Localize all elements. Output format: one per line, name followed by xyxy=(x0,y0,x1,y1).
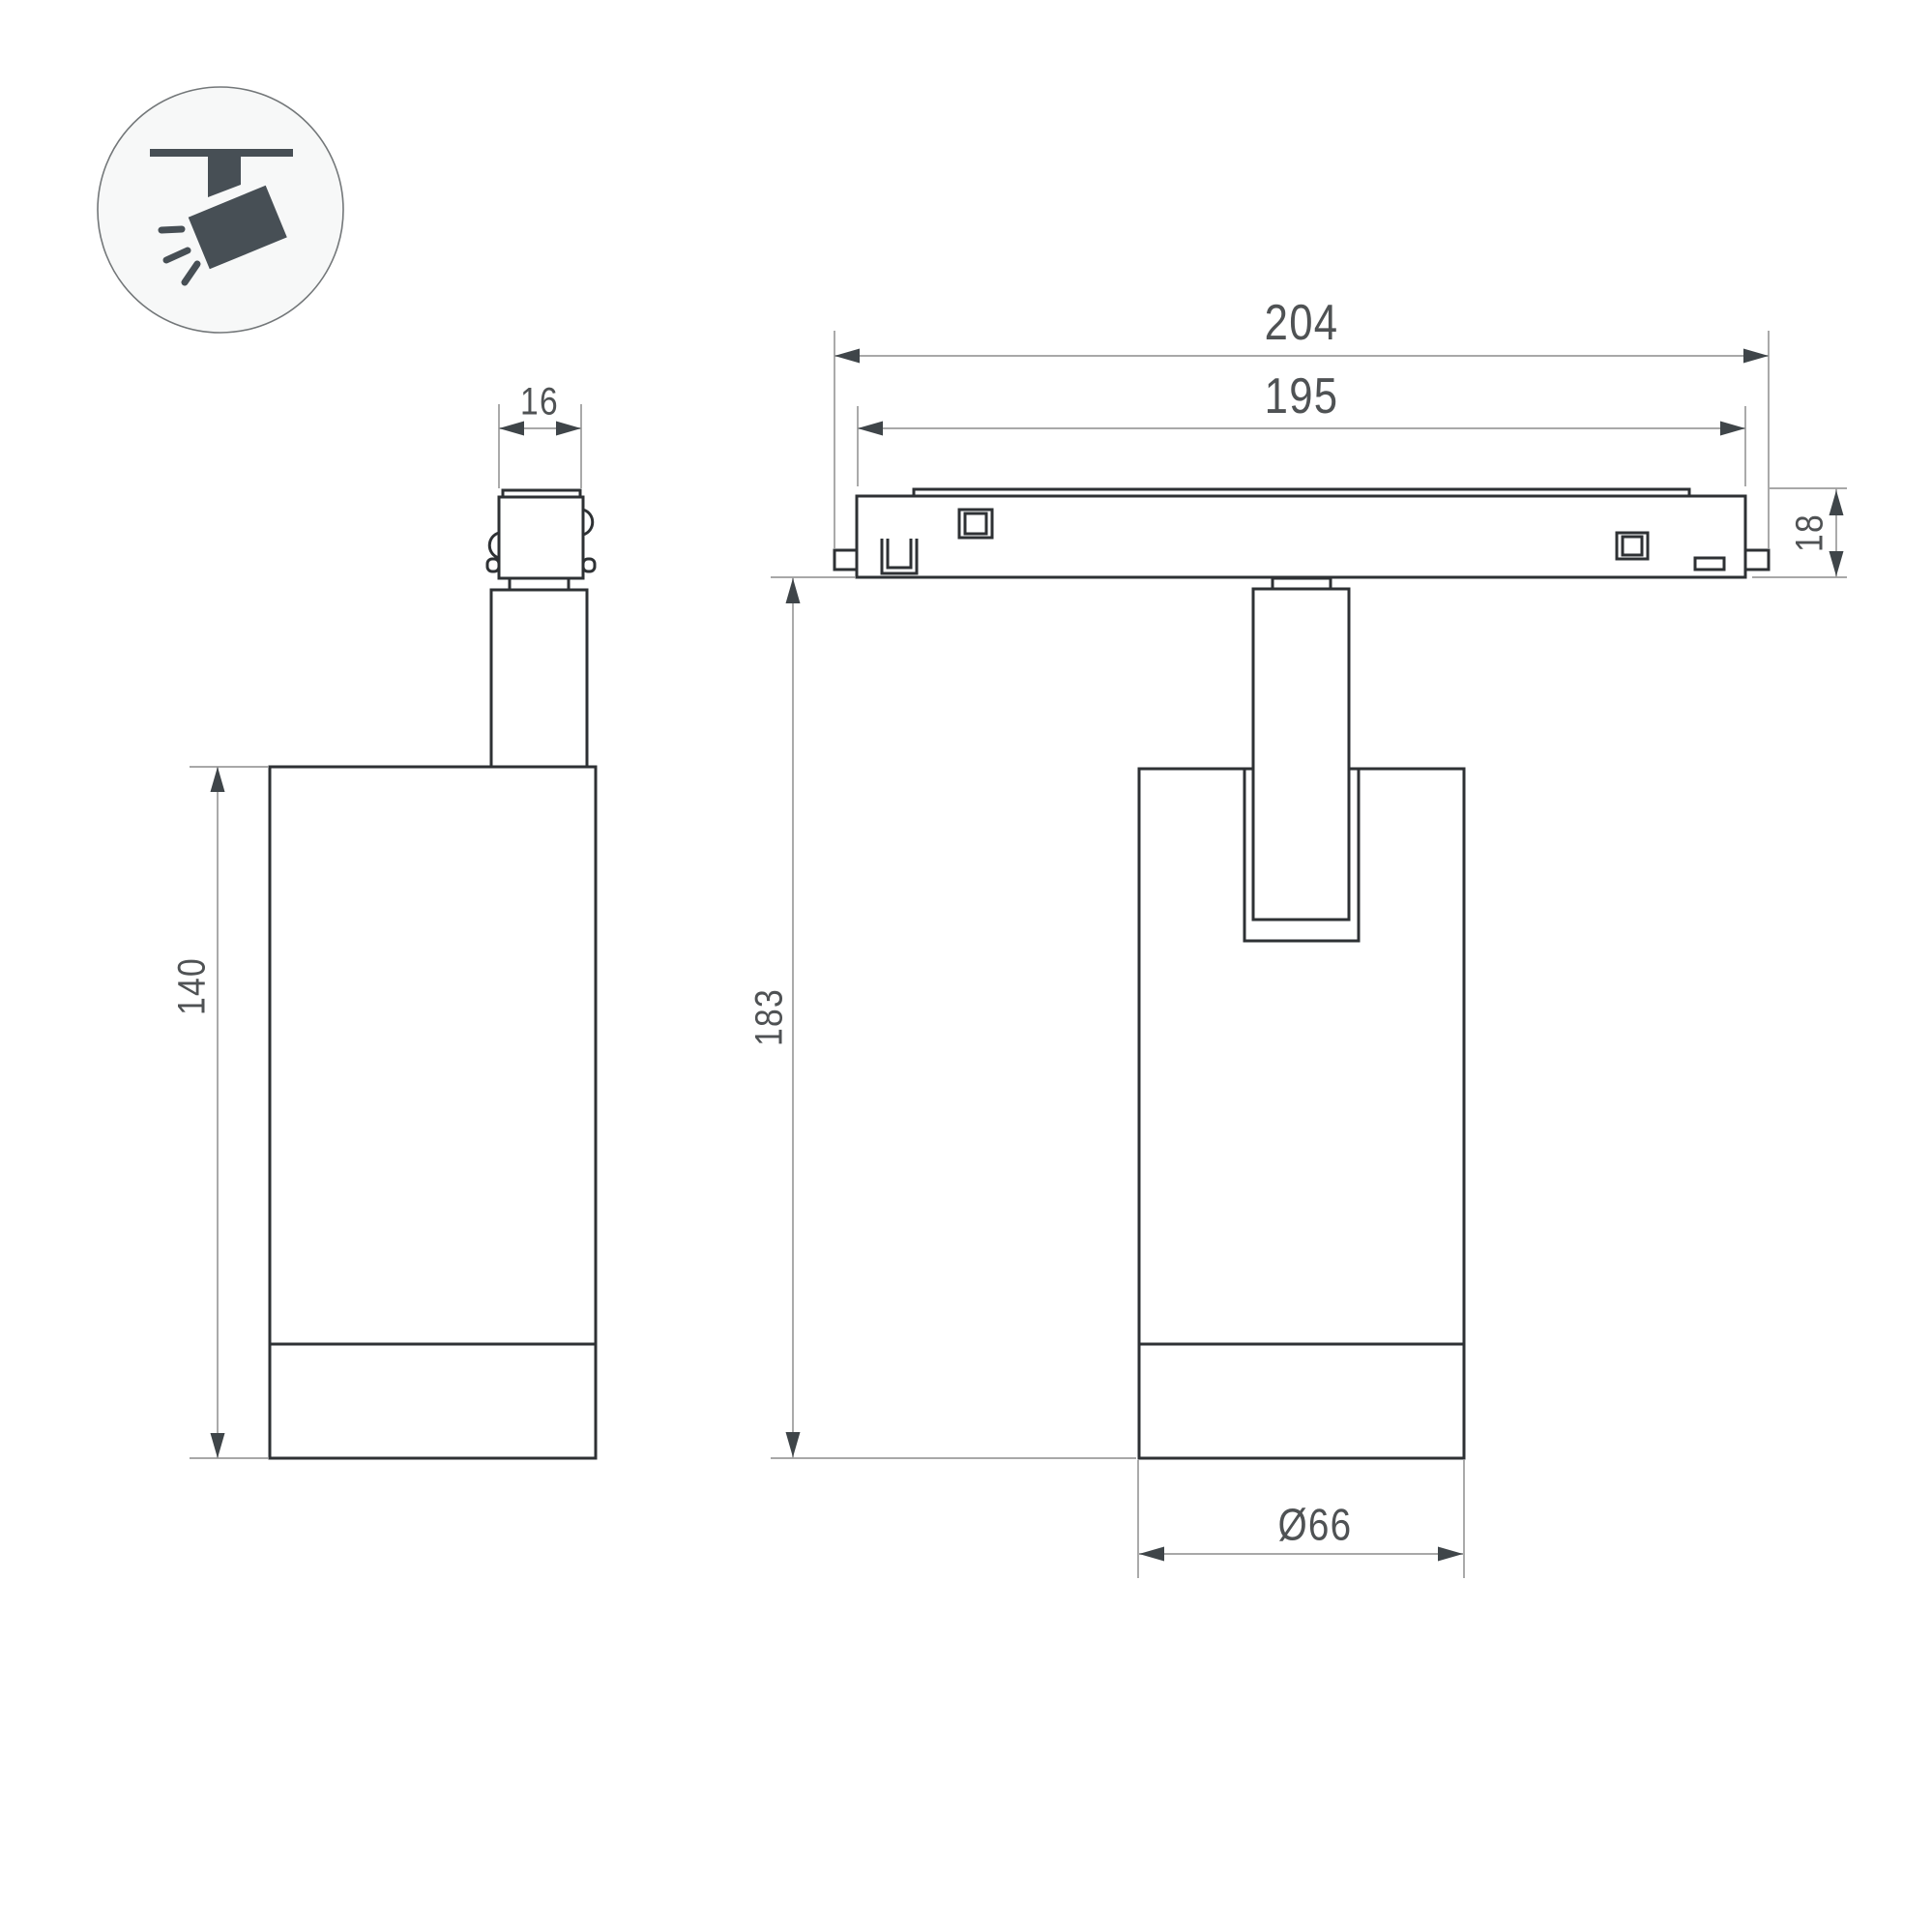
fixture-stem xyxy=(1253,589,1349,920)
arrow-right-icon xyxy=(556,422,581,436)
dim-label-body-diameter: Ø66 xyxy=(1278,1501,1353,1550)
ceiling-spotlight-icon xyxy=(98,87,343,333)
adapter-tab xyxy=(583,559,595,571)
light-ray-icon xyxy=(161,229,182,230)
fixture-stem xyxy=(491,590,587,767)
arrow-left-icon xyxy=(499,422,524,436)
arrow-right-icon xyxy=(1720,422,1745,436)
arrow-down-icon xyxy=(211,1433,225,1458)
arrow-up-icon xyxy=(786,578,801,603)
adapter-neck xyxy=(1273,578,1331,589)
arrow-left-icon xyxy=(858,422,883,436)
track-adapter xyxy=(499,497,583,578)
adapter-tab xyxy=(487,559,499,571)
arrow-right-icon xyxy=(1438,1547,1463,1562)
dimension-drawing-page: 16 140 204 195 18 183 Ø66 xyxy=(0,0,1932,1932)
arrow-down-icon xyxy=(1830,551,1844,576)
fixture-body xyxy=(270,767,596,1458)
arrow-left-icon xyxy=(834,349,860,364)
dim-label-track-length: 195 xyxy=(1265,368,1339,424)
track-contact xyxy=(1695,558,1724,570)
side-view xyxy=(270,490,596,1458)
dimension-drawing: 16 140 204 195 18 183 Ø66 xyxy=(0,0,1932,1932)
track-end-tab xyxy=(1745,550,1769,570)
arrow-up-icon xyxy=(1830,490,1844,515)
arrow-left-icon xyxy=(1139,1547,1164,1562)
icon-ceiling-line xyxy=(150,149,293,157)
dim-label-body-height: 140 xyxy=(170,957,213,1015)
front-view xyxy=(834,489,1769,1458)
dim-label-overall-length: 204 xyxy=(1265,295,1339,350)
arrow-down-icon xyxy=(786,1432,801,1457)
dim-label-adapter-width: 16 xyxy=(520,380,559,423)
track-end-tab xyxy=(834,550,857,570)
arrow-up-icon xyxy=(211,767,225,792)
adapter-neck xyxy=(510,578,569,590)
dim-label-track-height: 18 xyxy=(1788,513,1830,552)
dim-label-total-height: 183 xyxy=(747,988,790,1046)
arrow-right-icon xyxy=(1743,349,1769,364)
